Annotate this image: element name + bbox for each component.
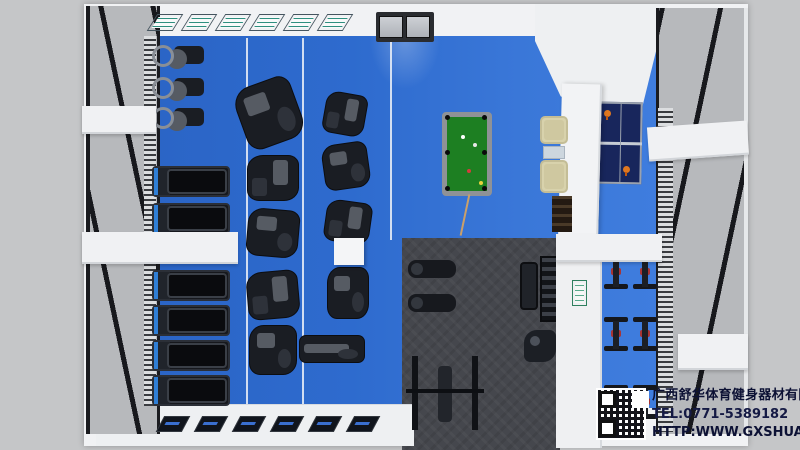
watermark-text: 广西舒华体育健身器材有限公司 TEL:0771-5389182 HTTP:WWW…	[652, 386, 800, 448]
pool-balls	[461, 135, 465, 139]
ping-pong-paddle	[604, 110, 611, 117]
weight-bench	[408, 294, 456, 312]
strength-machine	[520, 262, 538, 310]
pool-table	[442, 112, 492, 196]
strength-machine	[250, 326, 296, 374]
spin-bike	[633, 317, 657, 353]
pool-pockets	[445, 115, 450, 120]
website-url: HTTP:WWW.GXSHUA.COM	[652, 426, 800, 439]
strength-machine	[246, 270, 300, 320]
wall-poster-green	[572, 280, 587, 306]
door-glass-pane	[406, 16, 430, 38]
bike-seat	[640, 268, 650, 275]
elliptical-trainer	[150, 104, 206, 130]
ceiling-beam	[556, 234, 662, 262]
sideboard-rack	[552, 196, 572, 232]
treadmill	[152, 166, 230, 197]
watermark: 广西舒华体育健身器材有限公司 TEL:0771-5389182 HTTP:WWW…	[594, 384, 800, 448]
treadmill	[152, 340, 230, 371]
ping-pong-paddle	[623, 166, 630, 173]
strength-machine	[300, 336, 364, 362]
treadmill	[152, 305, 230, 336]
ceiling-beam	[678, 334, 748, 370]
weight-bench	[408, 260, 456, 278]
squat-rack	[412, 356, 478, 430]
ceiling-beam	[82, 232, 238, 264]
phone-number: TEL:0771-5389182	[652, 408, 800, 421]
strength-machine	[328, 268, 368, 318]
ceiling-beam	[647, 121, 749, 162]
company-name: 广西舒华体育健身器材有限公司	[652, 389, 800, 402]
spin-bike	[604, 317, 628, 353]
ceiling-beam	[82, 106, 156, 134]
qr-code-icon	[596, 388, 646, 440]
bike-seat	[611, 330, 621, 337]
treadmill	[152, 375, 230, 406]
treadmill	[152, 270, 230, 301]
floor-lane-line	[390, 38, 392, 240]
gym-floorplan-render: 广西舒华体育健身器材有限公司 TEL:0771-5389182 HTTP:WWW…	[0, 0, 800, 450]
coffee-table	[543, 146, 565, 159]
treadmill	[152, 203, 230, 234]
elliptical-trainer	[150, 74, 206, 100]
entrance-double-door	[376, 12, 434, 42]
strength-machine	[524, 330, 556, 362]
strength-machine	[246, 208, 300, 258]
sofa	[540, 116, 568, 144]
structural-pillar	[334, 238, 364, 265]
strength-machine	[322, 91, 368, 137]
door-glass-pane	[379, 16, 403, 38]
bike-seat	[640, 330, 650, 337]
elliptical-trainer	[150, 42, 206, 68]
bench-pad	[438, 366, 452, 422]
sofa	[540, 160, 568, 193]
strength-machine	[321, 141, 371, 191]
bike-seat	[611, 268, 621, 275]
strength-machine	[248, 156, 298, 200]
